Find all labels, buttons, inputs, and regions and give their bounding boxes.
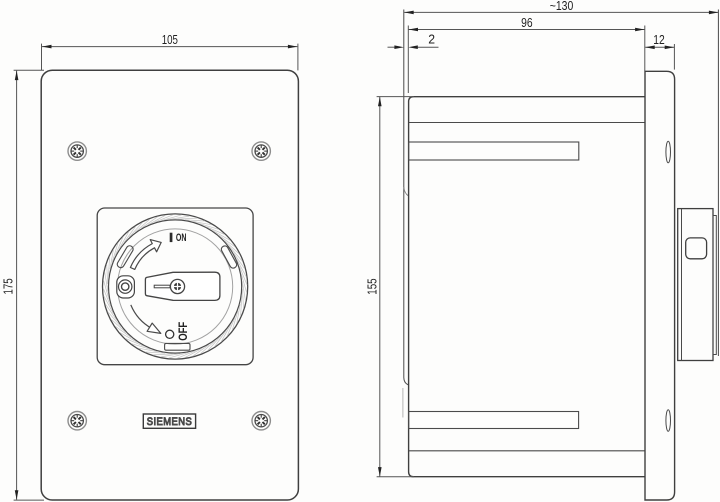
svg-text:OFF: OFF: [176, 321, 190, 340]
svg-text:2: 2: [428, 33, 435, 47]
svg-text:SIEMENS: SIEMENS: [147, 416, 193, 428]
svg-text:155: 155: [366, 279, 380, 295]
svg-text:ON: ON: [176, 232, 187, 244]
svg-text:~130: ~130: [550, 0, 574, 13]
svg-text:12: 12: [653, 33, 665, 47]
svg-text:105: 105: [162, 33, 178, 47]
svg-text:96: 96: [521, 16, 533, 30]
svg-text:175: 175: [1, 278, 15, 294]
